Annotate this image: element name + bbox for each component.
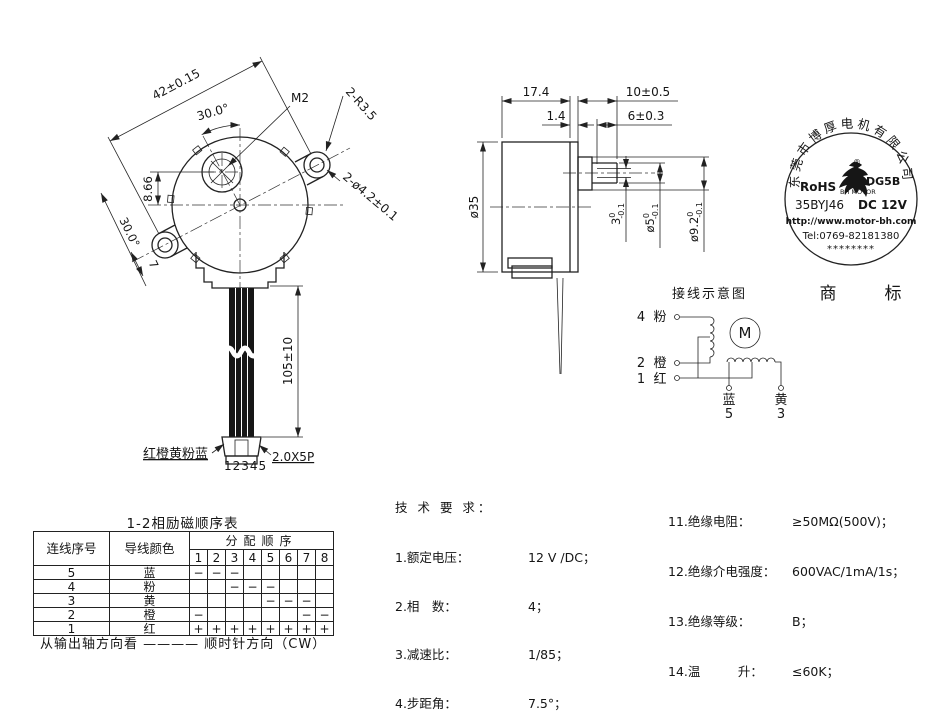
wire-color: 橙 (110, 608, 190, 622)
dim-ear-tab: 7 (146, 258, 162, 271)
dim-shaft-total: 10±0.5 (626, 85, 670, 99)
tech-line: 14.温 升：≤60K； (668, 664, 930, 681)
terminal5-number: 5 (725, 407, 733, 422)
mark (244, 608, 262, 622)
mark (226, 594, 244, 608)
terminal4-number: 4 (637, 310, 645, 325)
stamp-model: 35BYJ46 (795, 198, 844, 212)
phase-coil-b (727, 358, 775, 362)
stamp-sub-brand: BH MOTOR (840, 188, 876, 196)
tech-line: 13.绝缘等级：B； (668, 614, 930, 631)
registered-mark: ® (853, 158, 861, 167)
mark (298, 580, 316, 594)
dim-body-length: 17.4 (523, 85, 550, 99)
step-header: 4 (244, 550, 262, 566)
terminal4-color: 粉 (653, 310, 666, 325)
wire-number: 5 (34, 566, 110, 580)
trademark-char-1: 商 (820, 284, 837, 304)
step-header: 1 (190, 550, 208, 566)
table-row: 2 橙 −−− (34, 608, 334, 622)
mounting-ear-top-right (295, 152, 330, 185)
front-view: 42±0.15 30.0° M2 8.66 2-R3.5 2-ø4.2±0.1 … (101, 57, 401, 473)
dim-flat-width: 30-0.1 (608, 203, 626, 225)
stamp-stars: ******** (827, 244, 875, 255)
table-row: 5 蓝 −−− (34, 566, 334, 580)
side-view: 17.4 10±0.5 1.4 6±0.3 ø35 30-0.1 ø50-0.1… (467, 85, 709, 374)
dim-body-diameter: ø35 (467, 196, 481, 219)
mark: − (226, 580, 244, 594)
step-header: 3 (226, 550, 244, 566)
tech-line: 3.减速比：1/85； (395, 647, 673, 663)
step-header: 2 (208, 550, 226, 566)
mark (262, 566, 280, 580)
mark: − (262, 580, 280, 594)
wiring-diagram: 接线示意图 M 4 粉 2 橙 1 红 蓝 5 黄 3 (637, 286, 788, 422)
terminal3-color: 黄 (774, 393, 787, 408)
terminal2-color: 橙 (653, 356, 666, 371)
mark (226, 608, 244, 622)
table-row: 4 粉 −−− (34, 580, 334, 594)
mark (280, 580, 298, 594)
mark (244, 566, 262, 580)
tech-requirements-right: 11.绝缘电阻：≥50MΩ(500V)； 12.绝缘介电强度：600VAC/1m… (668, 481, 930, 712)
step-header: 6 (280, 550, 298, 566)
stamp-brand: DG5B (866, 175, 900, 188)
col-header-wire-number: 连线序号 (34, 532, 110, 566)
mark (208, 580, 226, 594)
company-stamp: 东莞市博厚电机有限公司 ® DG5B BH MOTOR RoHS 35BYJ46… (785, 116, 917, 265)
dim-ear-hole: 2-ø4.2±0.1 (340, 170, 401, 224)
trademark-heading: 商 标 (820, 284, 902, 304)
step-header: 5 (262, 550, 280, 566)
dim-ear-radius: 2-R3.5 (343, 85, 380, 124)
mark (316, 566, 334, 580)
mark: − (298, 608, 316, 622)
wire-number: 2 (34, 608, 110, 622)
dim-m2-label: M2 (291, 91, 309, 105)
tech-line: 4.步距角：7.5°； (395, 696, 673, 712)
motor-symbol: M (739, 324, 752, 342)
stamp-website: http://www.motor-bh.com (786, 217, 917, 227)
dim-boss-diameter: ø9.20-0.1 (686, 202, 704, 242)
mark: − (298, 594, 316, 608)
mark: − (226, 566, 244, 580)
mark: − (208, 566, 226, 580)
dim-angle-top: 30.0° (195, 101, 230, 123)
mark: − (190, 608, 208, 622)
terminal1-number: 1 (637, 372, 645, 387)
wiring-title: 接线示意图 (672, 286, 747, 302)
mark (208, 594, 226, 608)
mark (190, 594, 208, 608)
tech-title: 技 术 要 求： (395, 500, 673, 516)
wire-color: 黄 (110, 594, 190, 608)
tech-line: 2.相 数：4； (395, 599, 673, 615)
dim-m2-offset: 8.66 (141, 176, 155, 202)
mark (316, 594, 334, 608)
mark: − (316, 608, 334, 622)
terminal1-color: 红 (653, 371, 666, 387)
dim-wire-length: 105±10 (281, 337, 295, 385)
phase-table-title: 1-2相励磁顺序表 (33, 512, 332, 532)
mark: − (190, 566, 208, 580)
dim-flange-spacing: 42±0.15 (150, 66, 203, 103)
mark: − (262, 594, 280, 608)
tech-line: 11.绝缘电阻：≥50MΩ(500V)； (668, 514, 930, 531)
stamp-voltage: DC 12V (858, 198, 908, 212)
phase-sequence-table: 连线序号 导线颜色 分配顺序 1 2 3 4 5 6 7 8 5 蓝 −−− 4… (33, 531, 334, 636)
tech-line: 1.额定电压：12 V /DC； (395, 550, 673, 566)
terminal2-number: 2 (637, 356, 645, 371)
step-header: 8 (316, 550, 334, 566)
table-row: 3 黄 −−− (34, 594, 334, 608)
mark: − (244, 580, 262, 594)
wire-colors-label: 红橙黄粉蓝 (143, 446, 208, 462)
tech-requirements-left: 技 术 要 求： 1.额定电压：12 V /DC； 2.相 数：4； 3.减速比… (395, 468, 673, 712)
mark (262, 608, 280, 622)
dim-flat-length: 6±0.3 (628, 109, 665, 123)
wire-number: 4 (34, 580, 110, 594)
terminal5-color: 蓝 (722, 393, 735, 408)
mark: − (280, 594, 298, 608)
mark (208, 608, 226, 622)
mark (280, 566, 298, 580)
terminal3-number: 3 (777, 407, 785, 422)
stamp-phone: Tel:0769-82181380 (802, 231, 900, 242)
engineering-drawing-sheet: 42±0.15 30.0° M2 8.66 2-R3.5 2-ø4.2±0.1 … (0, 0, 930, 712)
mark (244, 594, 262, 608)
dim-shaft-diameter: ø50-0.1 (642, 203, 660, 232)
wire-number: 3 (34, 594, 110, 608)
pin-numbers-label: 12345 (224, 459, 267, 473)
connector-spec-label: 2.0X5P (272, 450, 314, 464)
wire-color: 粉 (110, 580, 190, 594)
mark (298, 566, 316, 580)
wire-ribbon (225, 288, 258, 437)
step-header: 7 (298, 550, 316, 566)
trademark-char-2: 标 (885, 284, 902, 304)
col-header-wire-color: 导线颜色 (110, 532, 190, 566)
mark (280, 608, 298, 622)
rotation-direction-note: 从输出轴方向看 ———— 顺时针方向（CW） (40, 633, 326, 652)
dim-plate-thickness: 1.4 (546, 109, 565, 123)
wire-color: 蓝 (110, 566, 190, 580)
mark (190, 580, 208, 594)
stamp-rohs: RoHS (800, 180, 836, 194)
mark (316, 580, 334, 594)
hanging-wire (557, 278, 563, 374)
tech-line: 12.绝缘介电强度：600VAC/1mA/1s； (668, 564, 930, 581)
shaft-boss (578, 157, 592, 190)
col-header-sequence: 分配顺序 (190, 532, 334, 550)
